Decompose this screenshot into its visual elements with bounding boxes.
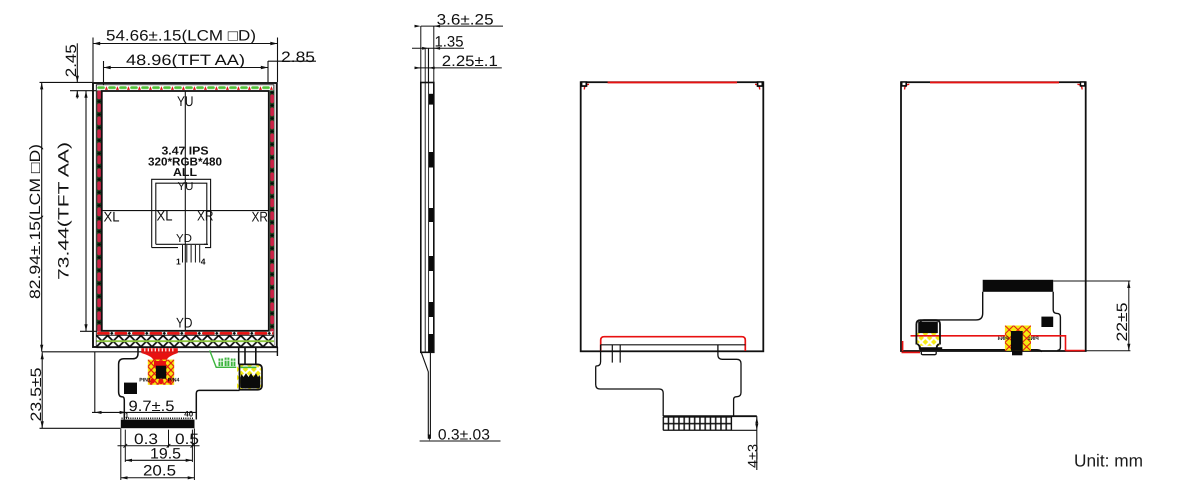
- svg-text:23.5±5: 23.5±5: [28, 368, 45, 422]
- svg-text:PIN1: PIN1: [1027, 336, 1038, 342]
- svg-text:2.85: 2.85: [281, 49, 315, 66]
- svg-text:XR: XR: [252, 209, 269, 225]
- svg-text:ALL: ALL: [173, 167, 197, 179]
- svg-text:YU: YU: [178, 181, 194, 193]
- svg-text:82.94±.15(LCM □D): 82.94±.15(LCM □D): [27, 144, 44, 299]
- svg-text:1.35: 1.35: [435, 34, 464, 51]
- svg-text:20.5: 20.5: [143, 462, 176, 479]
- svg-text:1: 1: [176, 257, 181, 267]
- svg-text:PIN4: PIN4: [997, 336, 1008, 342]
- svg-text:48.96(TFT AA): 48.96(TFT AA): [126, 52, 245, 69]
- svg-text:40: 40: [184, 410, 193, 419]
- svg-text:73.44(TFT AA): 73.44(TFT AA): [56, 142, 73, 280]
- svg-text:19.5: 19.5: [150, 446, 181, 463]
- svg-text:2.25±.1: 2.25±.1: [442, 53, 498, 70]
- svg-text:XR: XR: [197, 208, 214, 224]
- svg-text:Unit: mm: Unit: mm: [1074, 451, 1143, 471]
- svg-text:3.6±.25: 3.6±.25: [437, 11, 494, 28]
- svg-text:YU: YU: [177, 93, 194, 109]
- svg-text:0.3±.03: 0.3±.03: [438, 426, 490, 443]
- svg-text:54.66±.15(LCM □D): 54.66±.15(LCM □D): [106, 28, 256, 45]
- svg-text:YD: YD: [176, 233, 192, 245]
- svg-text:XL: XL: [157, 208, 173, 224]
- svg-text:XL: XL: [104, 209, 120, 225]
- svg-text:4±3: 4±3: [744, 444, 760, 468]
- svg-text:YD: YD: [176, 315, 193, 331]
- svg-text:PIN4: PIN4: [168, 377, 180, 383]
- svg-text:PIN1: PIN1: [139, 377, 151, 383]
- svg-text:4: 4: [201, 257, 206, 267]
- svg-text:9.7±.5: 9.7±.5: [129, 398, 175, 415]
- svg-text:22±5: 22±5: [1114, 303, 1131, 342]
- svg-text:2.45: 2.45: [63, 44, 80, 77]
